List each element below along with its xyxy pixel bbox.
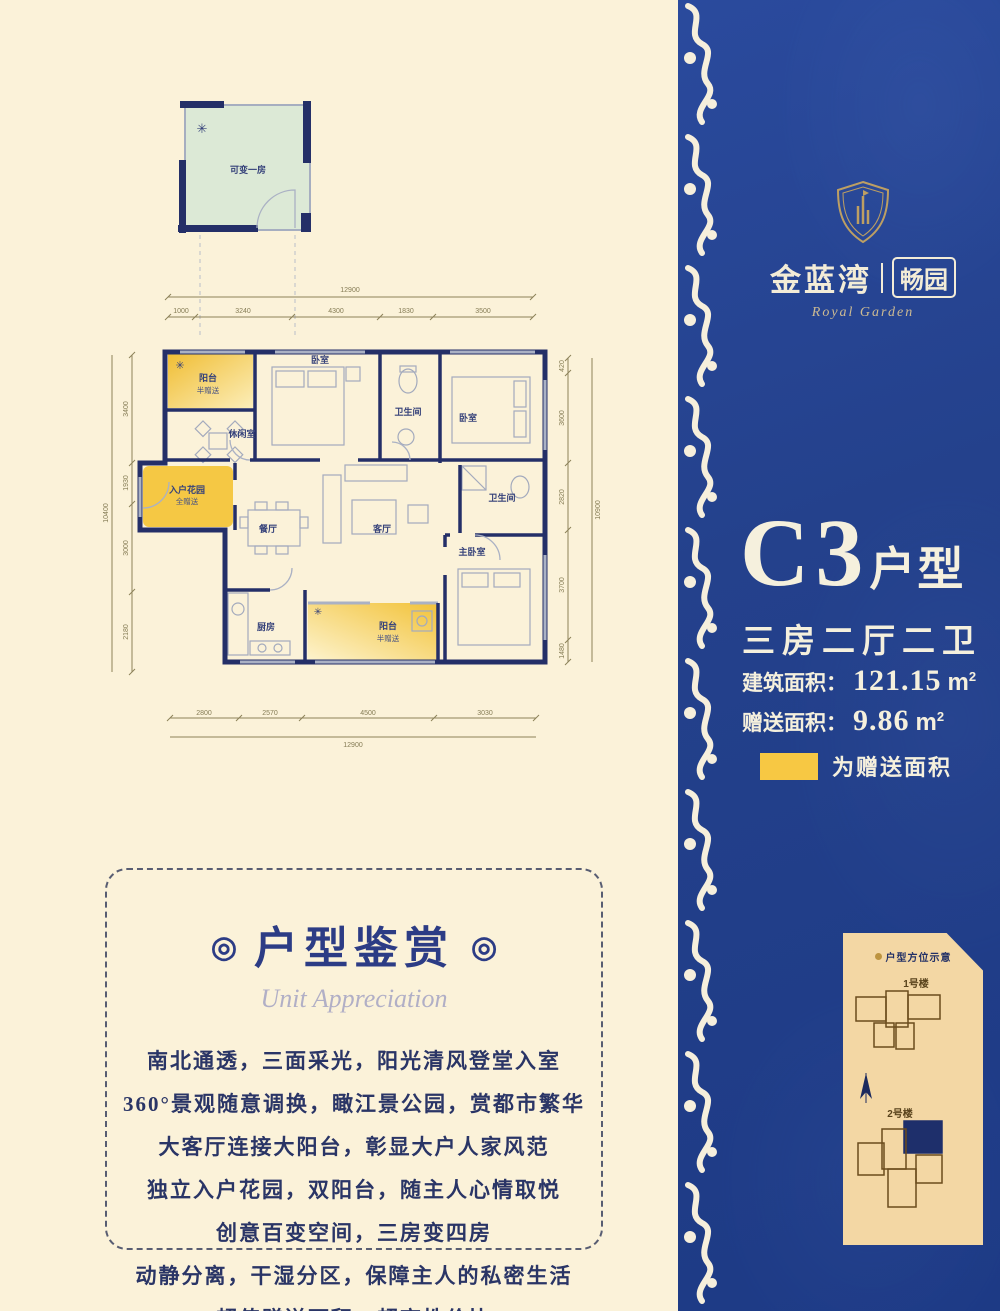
info-panel: 金蓝湾 畅园 Royal Garden C3户型 三房二厅二卫 建筑面积： 12… (678, 0, 1000, 1311)
svg-text:1480: 1480 (559, 643, 566, 659)
svg-text:2570: 2570 (262, 710, 278, 717)
compass-north-icon (860, 1073, 872, 1103)
svg-text:10400: 10400 (103, 503, 110, 523)
appreciation-line: 超值赠送面积，超高性价比 (107, 1298, 601, 1311)
site-orientation-card: 户型方位示意 1号楼 2号楼 (843, 933, 983, 1245)
brand-subname: 畅园 (892, 257, 956, 298)
svg-text:3240: 3240 (235, 308, 251, 315)
svg-text:3400: 3400 (123, 401, 130, 417)
dimension-right: 420 3600 2820 3700 1480 10900 (559, 355, 602, 665)
unit-code-suffix: 户型 (869, 544, 965, 595)
double-circle-icon: ◎ (471, 931, 497, 964)
unit-code-title: C3户型 (740, 505, 965, 601)
flyer-page: ✳ 可变一房 12900 1000 3240 4300 1830 3500 (0, 0, 1000, 1311)
detached-room: ✳ 可变一房 (178, 101, 311, 335)
unit-layout: 三房二厅二卫 (742, 614, 982, 662)
appreciation-line: 360°景观随意调换，瞰江景公园，赏都市繁华 (107, 1083, 601, 1126)
svg-text:1000: 1000 (173, 308, 189, 315)
appreciation-line: 大客厅连接大阳台，彰显大户人家风范 (107, 1126, 601, 1169)
appreciation-text: 南北通透，三面采光，阳光清风登堂入室 360°景观随意调换，瞰江景公园，赏都市繁… (107, 1040, 601, 1311)
svg-text:主卧室: 主卧室 (458, 546, 485, 557)
svg-text:厨房: 厨房 (257, 621, 275, 632)
brand-name-row: 金蓝湾 畅园 (726, 255, 1000, 300)
svg-text:休闲室: 休闲室 (227, 428, 255, 439)
gift-area-label: 赠送面积： (742, 707, 847, 737)
svg-text:3030: 3030 (477, 710, 493, 717)
gift-legend-label: 为赠送面积 (832, 750, 952, 782)
svg-text:3000: 3000 (123, 540, 130, 556)
brand-logo-block: 金蓝湾 畅园 Royal Garden (726, 180, 1000, 321)
appreciation-line: 创意百变空间，三房变四房 (107, 1212, 601, 1255)
appreciation-line: 南北通透，三面采光，阳光清风登堂入室 (107, 1040, 601, 1083)
bullet-dot-icon (875, 953, 882, 960)
building1-footprint (856, 991, 940, 1049)
svg-text:卫生间: 卫生间 (394, 406, 421, 417)
svg-text:半赠送: 半赠送 (377, 633, 400, 643)
building1-label: 1号楼 (903, 977, 929, 990)
dimension-left: 3400 1930 3000 2180 10400 (103, 352, 135, 675)
room-label: 可变一房 (230, 164, 266, 175)
building2-footprint (858, 1121, 942, 1207)
svg-text:阳台: 阳台 (379, 620, 397, 631)
damask-border-ornament (678, 0, 726, 1311)
svg-text:客厅: 客厅 (372, 523, 391, 534)
shield-emblem-icon (834, 180, 892, 244)
area-unit: m2 (916, 709, 945, 737)
svg-text:12900: 12900 (340, 287, 360, 294)
svg-text:2180: 2180 (123, 624, 130, 640)
svg-text:卧室: 卧室 (311, 354, 329, 365)
ac-icon: ✳ (197, 121, 208, 136)
svg-text:10900: 10900 (595, 500, 602, 520)
svg-text:半赠送: 半赠送 (197, 385, 220, 395)
svg-text:卧室: 卧室 (459, 412, 477, 423)
appreciation-box: ◎ 户型鉴赏 ◎ Unit Appreciation 南北通透，三面采光，阳光清… (105, 868, 603, 1250)
panel-content: 金蓝湾 畅园 Royal Garden C3户型 三房二厅二卫 建筑面积： 12… (726, 0, 1000, 1311)
svg-text:420: 420 (559, 360, 566, 372)
svg-text:3600: 3600 (559, 410, 566, 426)
brand-divider (881, 263, 883, 293)
appreciation-title: ◎ 户型鉴赏 ◎ (107, 912, 601, 976)
dimension-top: 12900 1000 3240 4300 1830 3500 (165, 287, 536, 320)
unit-code: C3 (740, 499, 869, 606)
svg-text:4300: 4300 (328, 308, 344, 315)
site-card-title-text: 户型方位示意 (886, 949, 952, 964)
svg-text:全赠送: 全赠送 (176, 496, 199, 506)
ac-icon: ✳ (175, 360, 184, 372)
svg-text:1830: 1830 (398, 308, 414, 315)
built-area-value: 121.15 (853, 664, 942, 698)
floor-plan: ✳ 可变一房 12900 1000 3240 4300 1830 3500 (90, 85, 630, 760)
svg-text:阳台: 阳台 (199, 372, 217, 383)
ac-icon: ✳ (314, 607, 322, 618)
svg-text:4500: 4500 (360, 710, 376, 717)
svg-text:1930: 1930 (123, 475, 130, 491)
built-area-row: 建筑面积： 121.15 m2 (742, 664, 976, 698)
svg-text:3500: 3500 (475, 308, 491, 315)
double-circle-icon: ◎ (211, 931, 237, 964)
gift-area-value: 9.86 (853, 704, 910, 738)
svg-text:入户花园: 入户花园 (168, 484, 205, 495)
area-unit: m2 (948, 669, 977, 697)
appreciation-line: 独立入户花园，双阳台，随主人心情取悦 (107, 1169, 601, 1212)
gift-legend-row: 为赠送面积 (760, 750, 952, 782)
site-card-title: 户型方位示意 (843, 949, 983, 964)
svg-text:卫生间: 卫生间 (488, 492, 515, 503)
dimension-bottom: 2800 2570 4500 3030 12900 (167, 710, 539, 749)
brand-tagline: Royal Garden (726, 305, 1000, 321)
svg-text:2820: 2820 (559, 489, 566, 505)
built-area-label: 建筑面积： (742, 667, 847, 697)
svg-text:餐厅: 餐厅 (258, 523, 277, 534)
floor-plan-area: ✳ 可变一房 12900 1000 3240 4300 1830 3500 (90, 85, 630, 760)
gift-area-swatch (760, 753, 818, 780)
building2-label: 2号楼 (887, 1107, 913, 1120)
brand-name: 金蓝湾 (770, 255, 872, 300)
appreciation-title-text: 户型鉴赏 (254, 924, 454, 973)
svg-text:2800: 2800 (196, 710, 212, 717)
svg-text:3700: 3700 (559, 577, 566, 593)
appreciation-line: 动静分离，干湿分区，保障主人的私密生活 (107, 1255, 601, 1298)
svg-text:12900: 12900 (343, 742, 363, 749)
appreciation-subtitle: Unit Appreciation (107, 984, 601, 1014)
site-plan: 1号楼 2号楼 (848, 967, 978, 1237)
gift-area-row: 赠送面积： 9.86 m2 (742, 704, 944, 738)
highlighted-unit (904, 1121, 942, 1153)
